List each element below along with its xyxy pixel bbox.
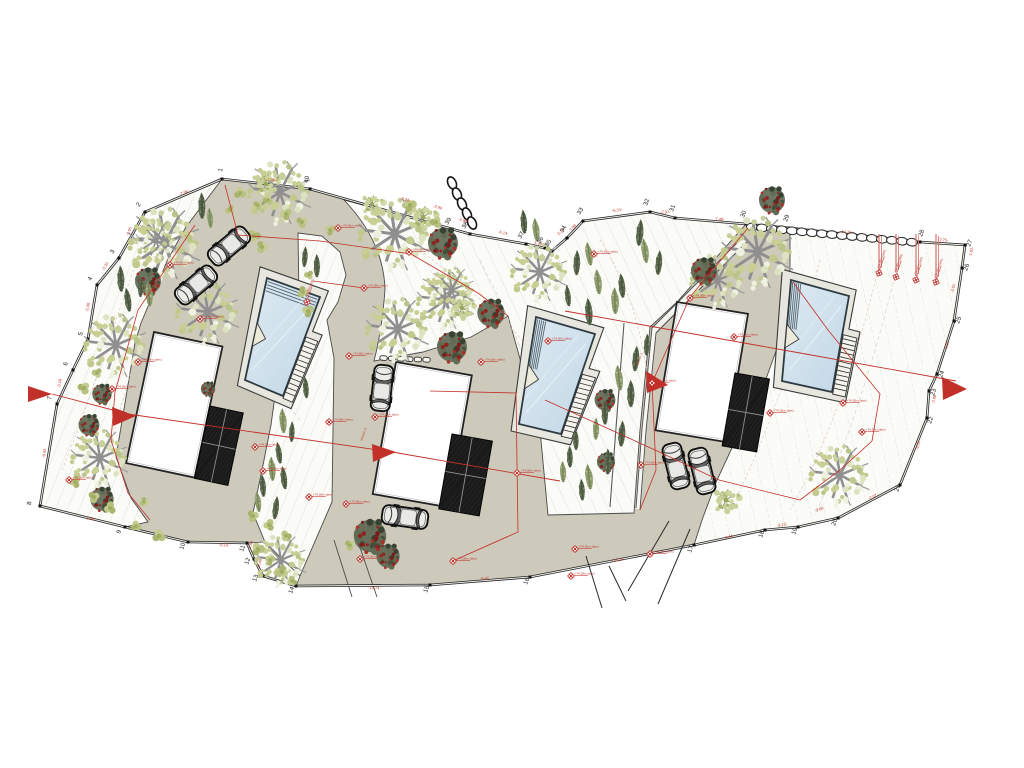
svg-text:-6,19-: -6,19- (219, 542, 230, 548)
svg-text:+74,30m (abs): +74,30m (abs) (73, 476, 93, 480)
svg-text:-14,78: -14,78 (840, 229, 852, 235)
svg-text:+74,30m (abs): +74,30m (abs) (521, 469, 541, 473)
svg-text:-7,08-: -7,08- (266, 177, 277, 183)
svg-text:+74,30m (abs): +74,30m (abs) (364, 555, 384, 559)
svg-text:+74,30m (abs): +74,30m (abs) (116, 385, 136, 389)
svg-text:+74,30m (abs): +74,30m (abs) (598, 250, 618, 254)
svg-text:+74,30m (abs): +74,30m (abs) (645, 461, 665, 465)
svg-text:+74,30m (abs): +74,30m (abs) (738, 333, 758, 337)
svg-text:+74,30m (abs): +74,30m (abs) (656, 379, 676, 383)
svg-text:+74,30m (abs): +74,30m (abs) (259, 443, 279, 447)
svg-text:-7,49-: -7,49- (714, 216, 725, 222)
svg-text:-9,45: -9,45 (480, 575, 490, 581)
svg-text:+74,30m (abs): +74,30m (abs) (142, 358, 162, 362)
svg-text:+74,30m (abs): +74,30m (abs) (847, 399, 867, 403)
svg-text:+74,30m (abs): +74,30m (abs) (774, 409, 794, 413)
svg-text:+74,30m (abs): +74,30m (abs) (379, 413, 399, 417)
svg-text:+74,30m (abs): +74,30m (abs) (485, 358, 505, 362)
svg-text:+74,30m (abs): +74,30m (abs) (579, 545, 599, 549)
svg-text:+74,30m (abs): +74,30m (abs) (413, 248, 433, 252)
svg-text:+74,30m (abs): +74,30m (abs) (333, 418, 353, 422)
svg-text:+74,30m (abs): +74,30m (abs) (353, 352, 373, 356)
svg-text:+74,30m (abs): +74,30m (abs) (694, 294, 714, 298)
svg-text:+74,30m (abs): +74,30m (abs) (368, 284, 388, 288)
svg-text:+74,30m (abs): +74,30m (abs) (575, 572, 595, 576)
svg-text:+74,30m (abs): +74,30m (abs) (866, 428, 886, 432)
svg-text:+74,30m (abs): +74,30m (abs) (204, 315, 224, 319)
svg-text:+74,30m (abs): +74,30m (abs) (654, 550, 674, 554)
svg-text:+74,30m (abs): +74,30m (abs) (174, 261, 194, 265)
svg-text:+74,30m (abs): +74,30m (abs) (267, 467, 287, 471)
svg-text:+74,30m (abs): +74,30m (abs) (342, 224, 362, 228)
svg-text:+74,30m (abs): +74,30m (abs) (350, 500, 370, 504)
svg-text:+74,30m (abs): +74,30m (abs) (457, 557, 477, 561)
svg-text:-13,74-: -13,74- (368, 585, 382, 590)
svg-text:-2,75-: -2,75- (938, 237, 949, 243)
svg-text:+74,30m (abs): +74,30m (abs) (313, 493, 333, 497)
svg-text:+74,30m (abs): +74,30m (abs) (552, 337, 572, 341)
